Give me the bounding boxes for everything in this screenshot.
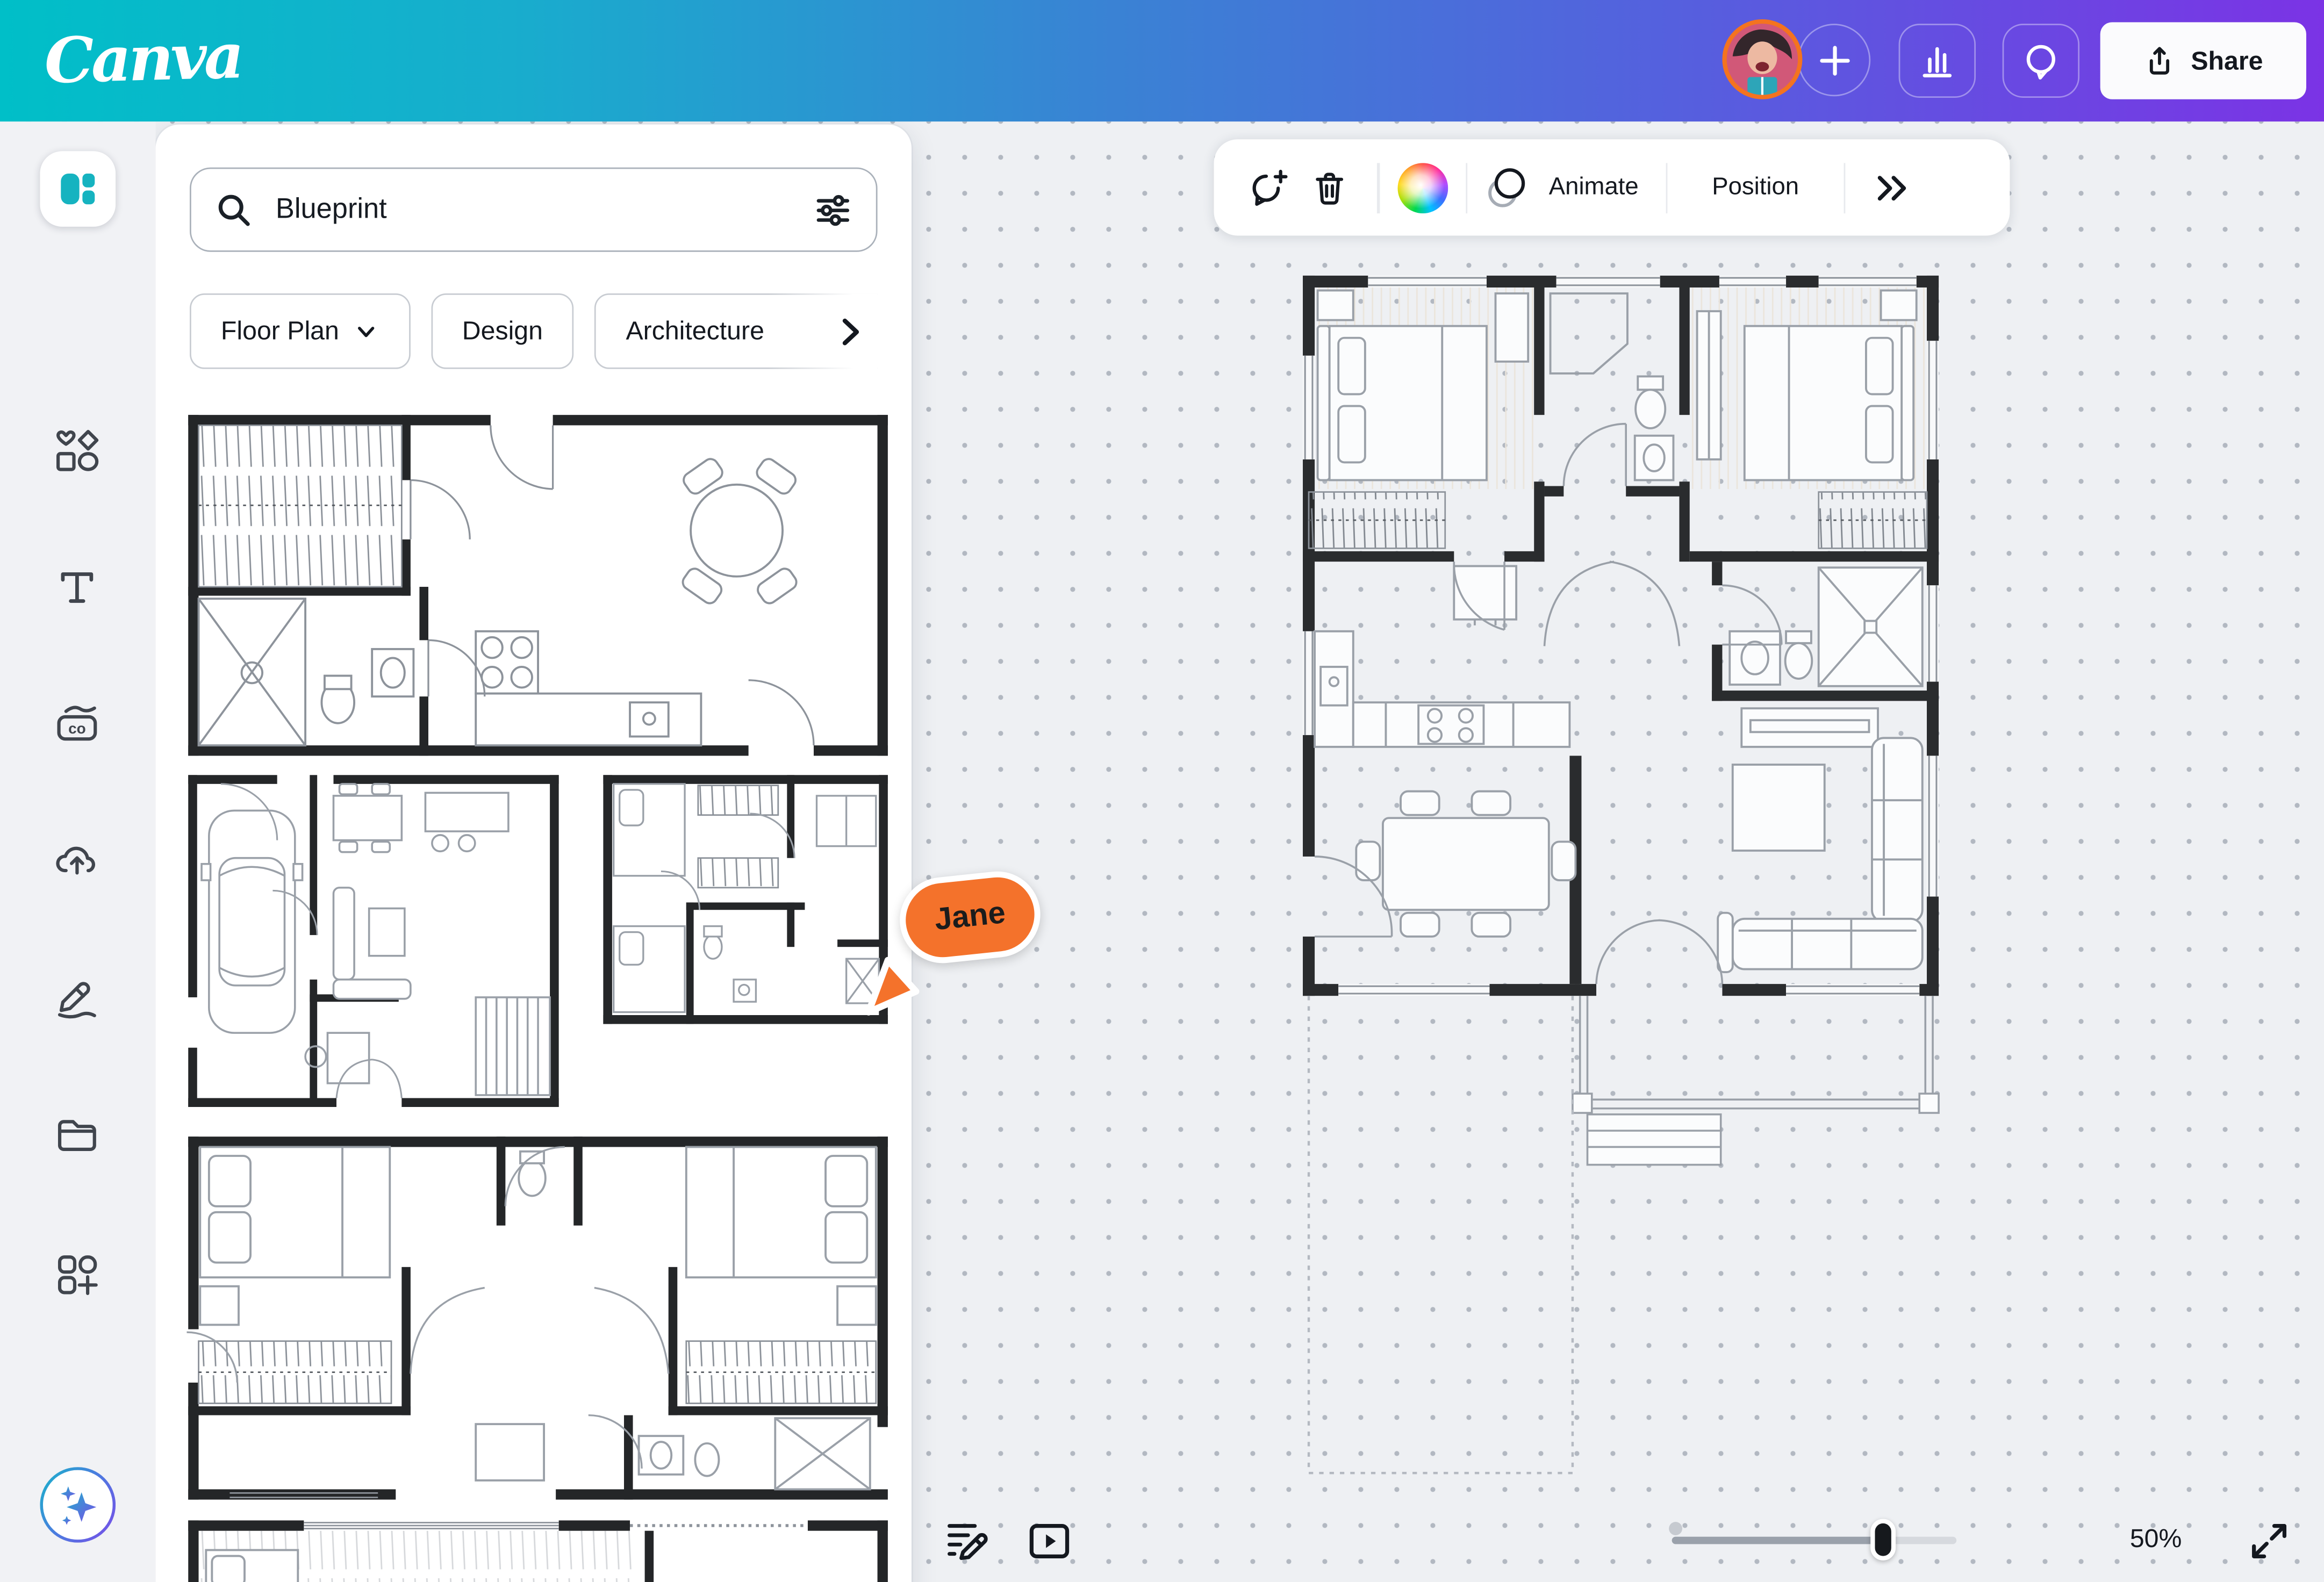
chip-design-label: Design (462, 315, 543, 347)
comment-add-button[interactable] (1240, 158, 1300, 217)
insights-button[interactable] (1899, 24, 1976, 98)
avatar-image (1727, 24, 1798, 95)
search-results-panel: Floor Plan Design Architecture (156, 125, 912, 1582)
zoom-slider-knob[interactable] (1870, 1519, 1896, 1561)
more-tools-button[interactable] (1863, 158, 1923, 217)
brand-icon: co (53, 700, 101, 747)
floor-plan-thumbnail-2[interactable] (185, 772, 562, 1110)
notes-icon (943, 1518, 990, 1565)
chip-architecture-label: Architecture (626, 315, 764, 347)
sidebar: co (0, 121, 156, 1582)
magic-ai-button[interactable] (40, 1467, 116, 1543)
zoom-slider[interactable] (1672, 1537, 1956, 1543)
collaborator-name-label: Jane (933, 896, 1007, 939)
add-new-button[interactable] (1798, 24, 1870, 96)
search-box[interactable] (190, 168, 878, 252)
folder-icon (53, 1111, 101, 1159)
cloud-upload-icon (53, 836, 101, 883)
toolbar-divider (1665, 162, 1667, 213)
zoom-slider-start-dot (1669, 1522, 1682, 1535)
canva-logo[interactable]: Canva (44, 18, 242, 100)
sidebar-item-design[interactable] (40, 151, 116, 227)
search-icon (215, 190, 254, 229)
notes-button[interactable] (943, 1518, 990, 1565)
toolbar-divider (1377, 162, 1379, 213)
chip-floor-plan-label: Floor Plan (221, 315, 339, 347)
apps-grid-icon (53, 1250, 101, 1298)
fullscreen-button[interactable] (2246, 1518, 2293, 1565)
toolbar-divider (1465, 162, 1467, 213)
design-icon (58, 169, 98, 208)
canva-editor: Canva (0, 0, 2324, 1582)
draw-pen-icon (53, 972, 101, 1019)
svg-text:co: co (68, 720, 86, 737)
delete-button[interactable] (1300, 158, 1359, 217)
share-upload-icon (2143, 45, 2176, 77)
search-input[interactable] (272, 192, 794, 227)
play-icon (1025, 1518, 1073, 1565)
floor-plan-thumbnail-5[interactable] (185, 1514, 891, 1582)
double-chevron-right-icon (1873, 167, 1914, 208)
sidebar-item-apps[interactable] (45, 1242, 110, 1307)
chip-design[interactable]: Design (431, 293, 574, 369)
sidebar-item-uploads[interactable] (45, 827, 110, 892)
floor-plan-thumbnail-4[interactable] (185, 1134, 891, 1500)
text-icon (53, 563, 101, 610)
expand-icon (2246, 1518, 2293, 1565)
trash-icon (1310, 168, 1349, 207)
share-label: Share (2191, 45, 2263, 76)
comments-button[interactable] (2003, 24, 2079, 98)
comment-add-icon (1250, 167, 1291, 208)
sidebar-item-projects[interactable] (45, 1103, 110, 1168)
toolbar-divider (1844, 162, 1846, 213)
color-picker-button[interactable] (1397, 162, 1447, 213)
canvas-floor-plan[interactable] (1297, 267, 1949, 1511)
animate-button[interactable]: Animate (1485, 165, 1647, 210)
magic-sparkles-icon (53, 1480, 103, 1530)
sidebar-item-draw[interactable] (45, 963, 110, 1029)
floor-plan-thumbnail-1[interactable] (185, 412, 891, 759)
collaborator-cursor-arrow-icon (861, 951, 926, 1019)
chip-floor-plan[interactable]: Floor Plan (190, 293, 410, 369)
top-bar: Canva (0, 0, 2324, 121)
filter-chips-row: Floor Plan Design Architecture (190, 293, 878, 370)
chevron-down-icon (353, 318, 379, 345)
zoom-slider-fill (1672, 1537, 1883, 1543)
zoom-level-label[interactable]: 50% (2130, 1523, 2182, 1555)
floor-plan-thumbnail-3[interactable] (600, 772, 891, 1027)
canvas-toolbar: Animate Position (1214, 139, 2010, 235)
position-button[interactable]: Position (1685, 174, 1826, 202)
bar-chart-icon (1918, 41, 1956, 80)
sidebar-item-text[interactable] (45, 554, 110, 619)
sidebar-item-elements[interactable] (45, 418, 110, 483)
animate-circles-icon (1485, 165, 1530, 210)
avatar[interactable] (1722, 19, 1802, 99)
chevron-right-icon[interactable] (833, 314, 869, 350)
plus-icon (1817, 42, 1852, 78)
present-button[interactable] (1025, 1518, 1073, 1565)
elements-shapes-icon (53, 427, 101, 474)
filter-sliders-icon[interactable] (814, 190, 852, 229)
animate-label: Animate (1540, 174, 1647, 202)
share-button[interactable]: Share (2100, 22, 2306, 99)
comment-icon (2022, 41, 2061, 80)
sidebar-item-brand[interactable]: co (45, 691, 110, 756)
